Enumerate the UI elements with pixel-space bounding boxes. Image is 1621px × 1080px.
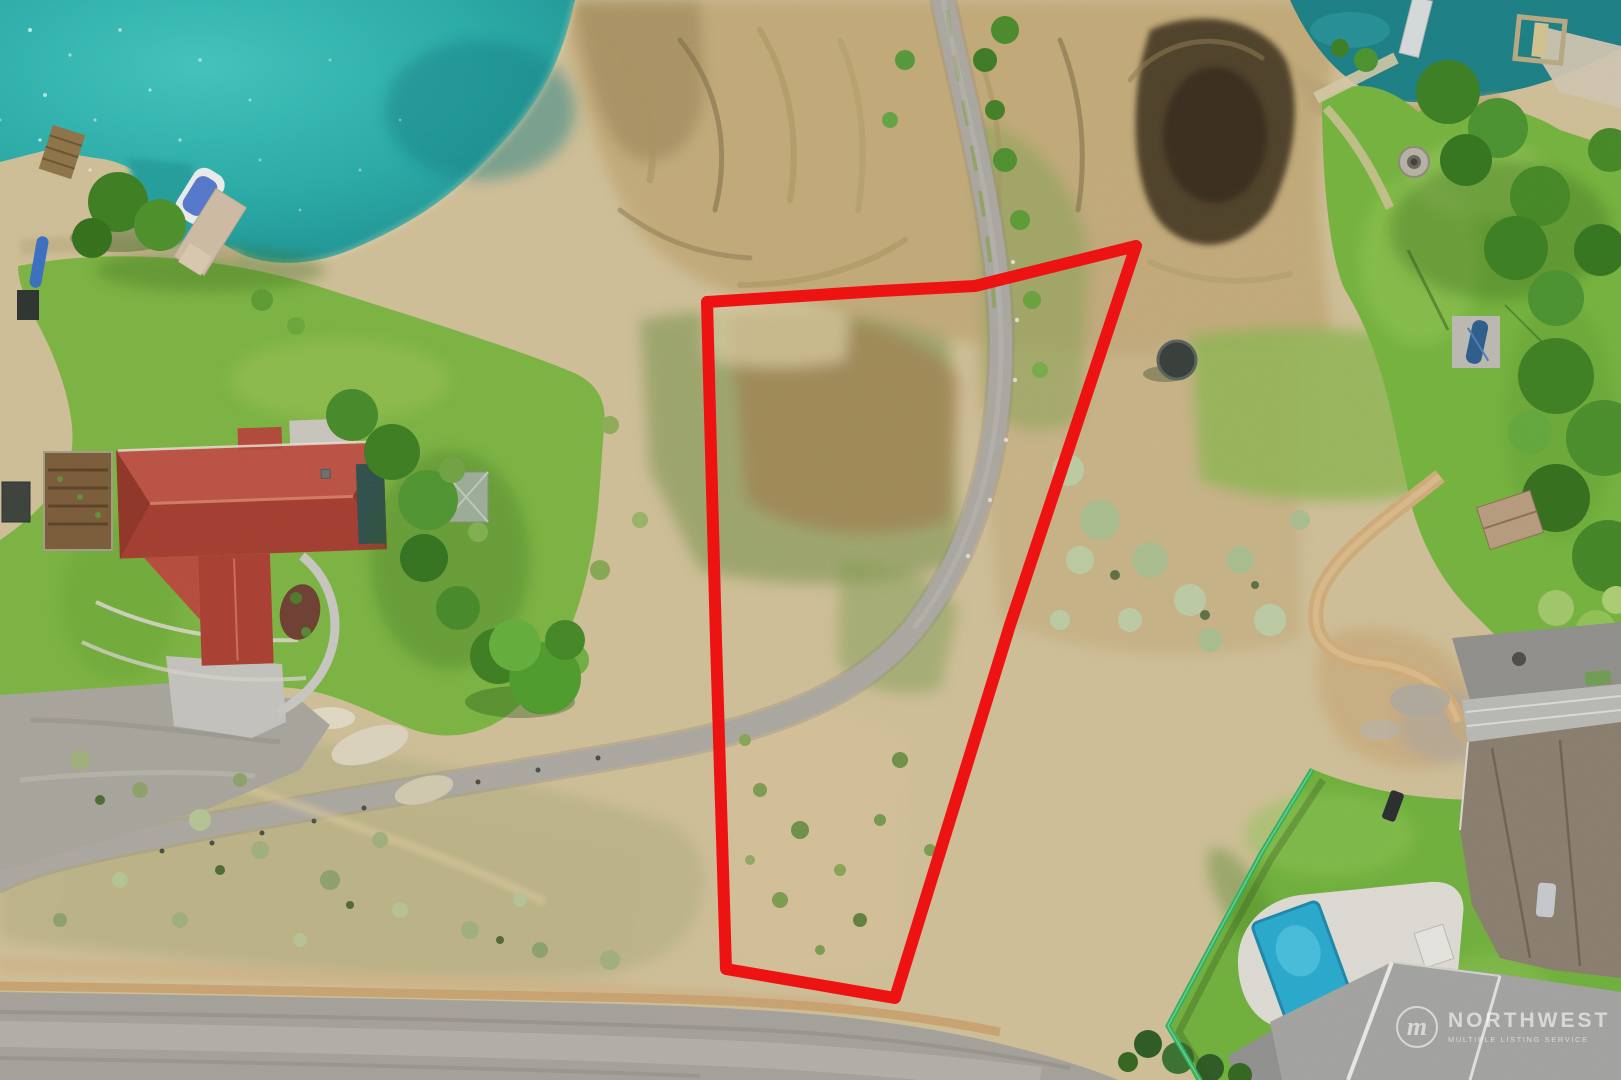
- mls-logo-letter: m: [1407, 1014, 1427, 1040]
- mls-logo-icon: m: [1396, 1006, 1438, 1048]
- grain-overlay: [0, 0, 1621, 1080]
- aerial-photo: m NORTHWEST MULTIPLE LISTING SERVICE: [0, 0, 1621, 1080]
- watermark: m NORTHWEST MULTIPLE LISTING SERVICE: [1396, 1006, 1610, 1048]
- watermark-brand: NORTHWEST: [1448, 1010, 1610, 1032]
- aerial-scene: [0, 0, 1621, 1080]
- watermark-tagline: MULTIPLE LISTING SERVICE: [1448, 1035, 1610, 1044]
